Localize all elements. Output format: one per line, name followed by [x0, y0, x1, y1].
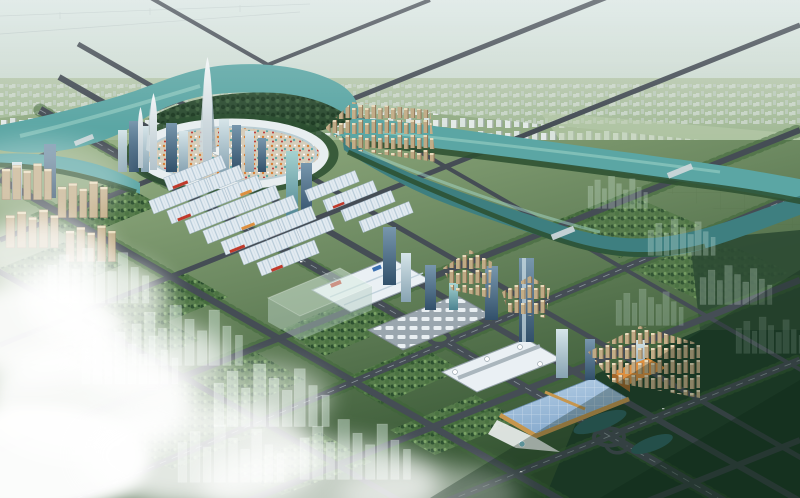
aerial-city-render: [0, 0, 800, 498]
